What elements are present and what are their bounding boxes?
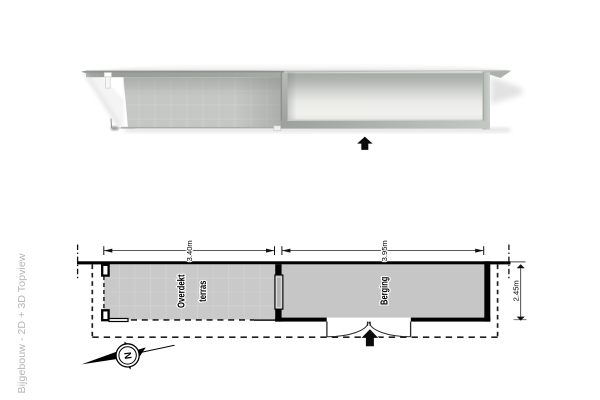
svg-text:Bijgebouw - 2D + 3D Topview: Bijgebouw - 2D + 3D Topview	[17, 253, 28, 394]
svg-text:2.45m: 2.45m	[512, 280, 521, 301]
svg-text:Berging: Berging	[378, 277, 390, 305]
svg-text:N: N	[121, 352, 133, 360]
svg-text:3.95m: 3.95m	[380, 240, 389, 261]
svg-text:3.40m: 3.40m	[185, 240, 194, 261]
